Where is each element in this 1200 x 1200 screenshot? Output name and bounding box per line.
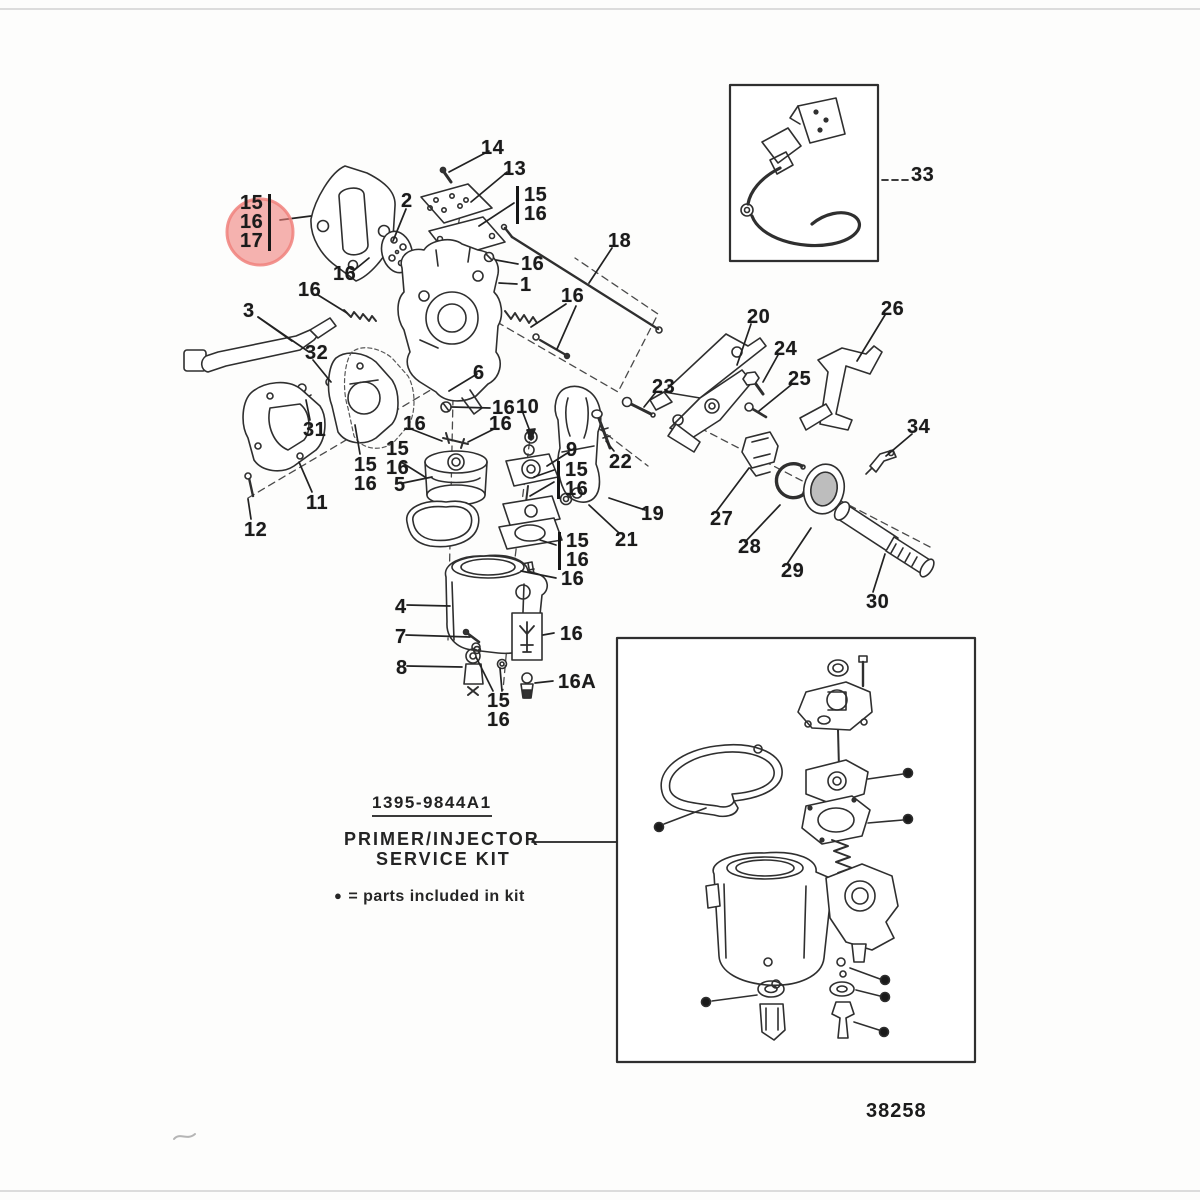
part-number-callout: 14 xyxy=(481,139,504,158)
part-number-callout: 2 xyxy=(401,192,413,211)
part-number-callout: 1 xyxy=(520,276,532,295)
drawing-number: 38258 xyxy=(866,1100,927,1122)
part-number-callout: 11 xyxy=(306,494,328,513)
part-number-callout: 16A xyxy=(558,673,596,692)
part-number-callout: 15 16 xyxy=(516,186,547,224)
kit-name-line2: SERVICE KIT xyxy=(376,849,511,869)
part-number-callout: 32 xyxy=(305,344,328,363)
part-number-callout: 15 16 17 xyxy=(240,194,271,251)
part-number-callout: 29 xyxy=(781,562,804,581)
part-number-callout: 16 xyxy=(298,281,321,300)
part-number-callout: 26 xyxy=(881,300,904,319)
kit-part-number: 1395-9844A1 xyxy=(372,793,492,817)
part-number-callout: 16 xyxy=(521,255,544,274)
part-number-callout: 16 xyxy=(403,415,426,434)
part-number-callout: 10 xyxy=(516,398,539,417)
part-number-callout: 33 xyxy=(911,166,934,185)
part-number-callout: 15 16 xyxy=(557,461,588,499)
part-number-callout: 9 xyxy=(566,441,578,460)
part-number-callout: 28 xyxy=(738,538,761,557)
part-number-callout: 16 xyxy=(560,625,583,644)
part-number-callout: 7 xyxy=(395,628,407,647)
part-number-callout: 23 xyxy=(652,378,675,397)
kit-legend-text: = parts included in kit xyxy=(348,888,524,905)
part-number-callout: 12 xyxy=(244,521,267,540)
part-number-callout: 21 xyxy=(615,531,638,550)
part-number-callout: 16 xyxy=(333,265,356,284)
part-number-callout: 25 xyxy=(788,370,811,389)
part-number-callout: 19 xyxy=(641,505,664,524)
part-number-callout: 8 xyxy=(396,659,408,678)
part-number-callout: 31 xyxy=(303,421,326,440)
part-number-callout: 22 xyxy=(609,453,632,472)
part-number-callout: 4 xyxy=(395,598,407,617)
kit-legend: ●= parts included in kit xyxy=(334,886,525,907)
part-number-callout: 27 xyxy=(710,510,733,529)
part-number-callout: 24 xyxy=(774,340,797,359)
part-number-callout: 15 16 xyxy=(558,532,589,570)
callout-layer: 141315 16215 16 17161631611618323115 161… xyxy=(0,0,1200,1200)
part-number-callout: 15 16 xyxy=(354,456,377,494)
kit-name-line1: PRIMER/INJECTOR xyxy=(344,829,540,849)
part-number-callout: 5 xyxy=(394,476,406,495)
part-number-callout: 16 xyxy=(489,415,512,434)
part-number-callout: 6 xyxy=(473,364,485,383)
bullet-icon: ● xyxy=(334,888,342,903)
part-number-callout: 13 xyxy=(503,160,526,179)
parts-diagram-page: 141315 16215 16 17161631611618323115 161… xyxy=(0,0,1200,1200)
part-number-callout: 16 xyxy=(561,570,584,589)
part-number-callout: 18 xyxy=(608,232,631,251)
part-number-callout: 20 xyxy=(747,308,770,327)
part-number-callout: 3 xyxy=(243,302,255,321)
part-number-callout: 15 16 xyxy=(386,440,409,478)
part-number-callout: 15 16 xyxy=(487,692,510,730)
part-number-callout: 34 xyxy=(907,418,930,437)
part-number-callout: 16 xyxy=(561,287,584,306)
part-number-callout: 30 xyxy=(866,593,889,612)
